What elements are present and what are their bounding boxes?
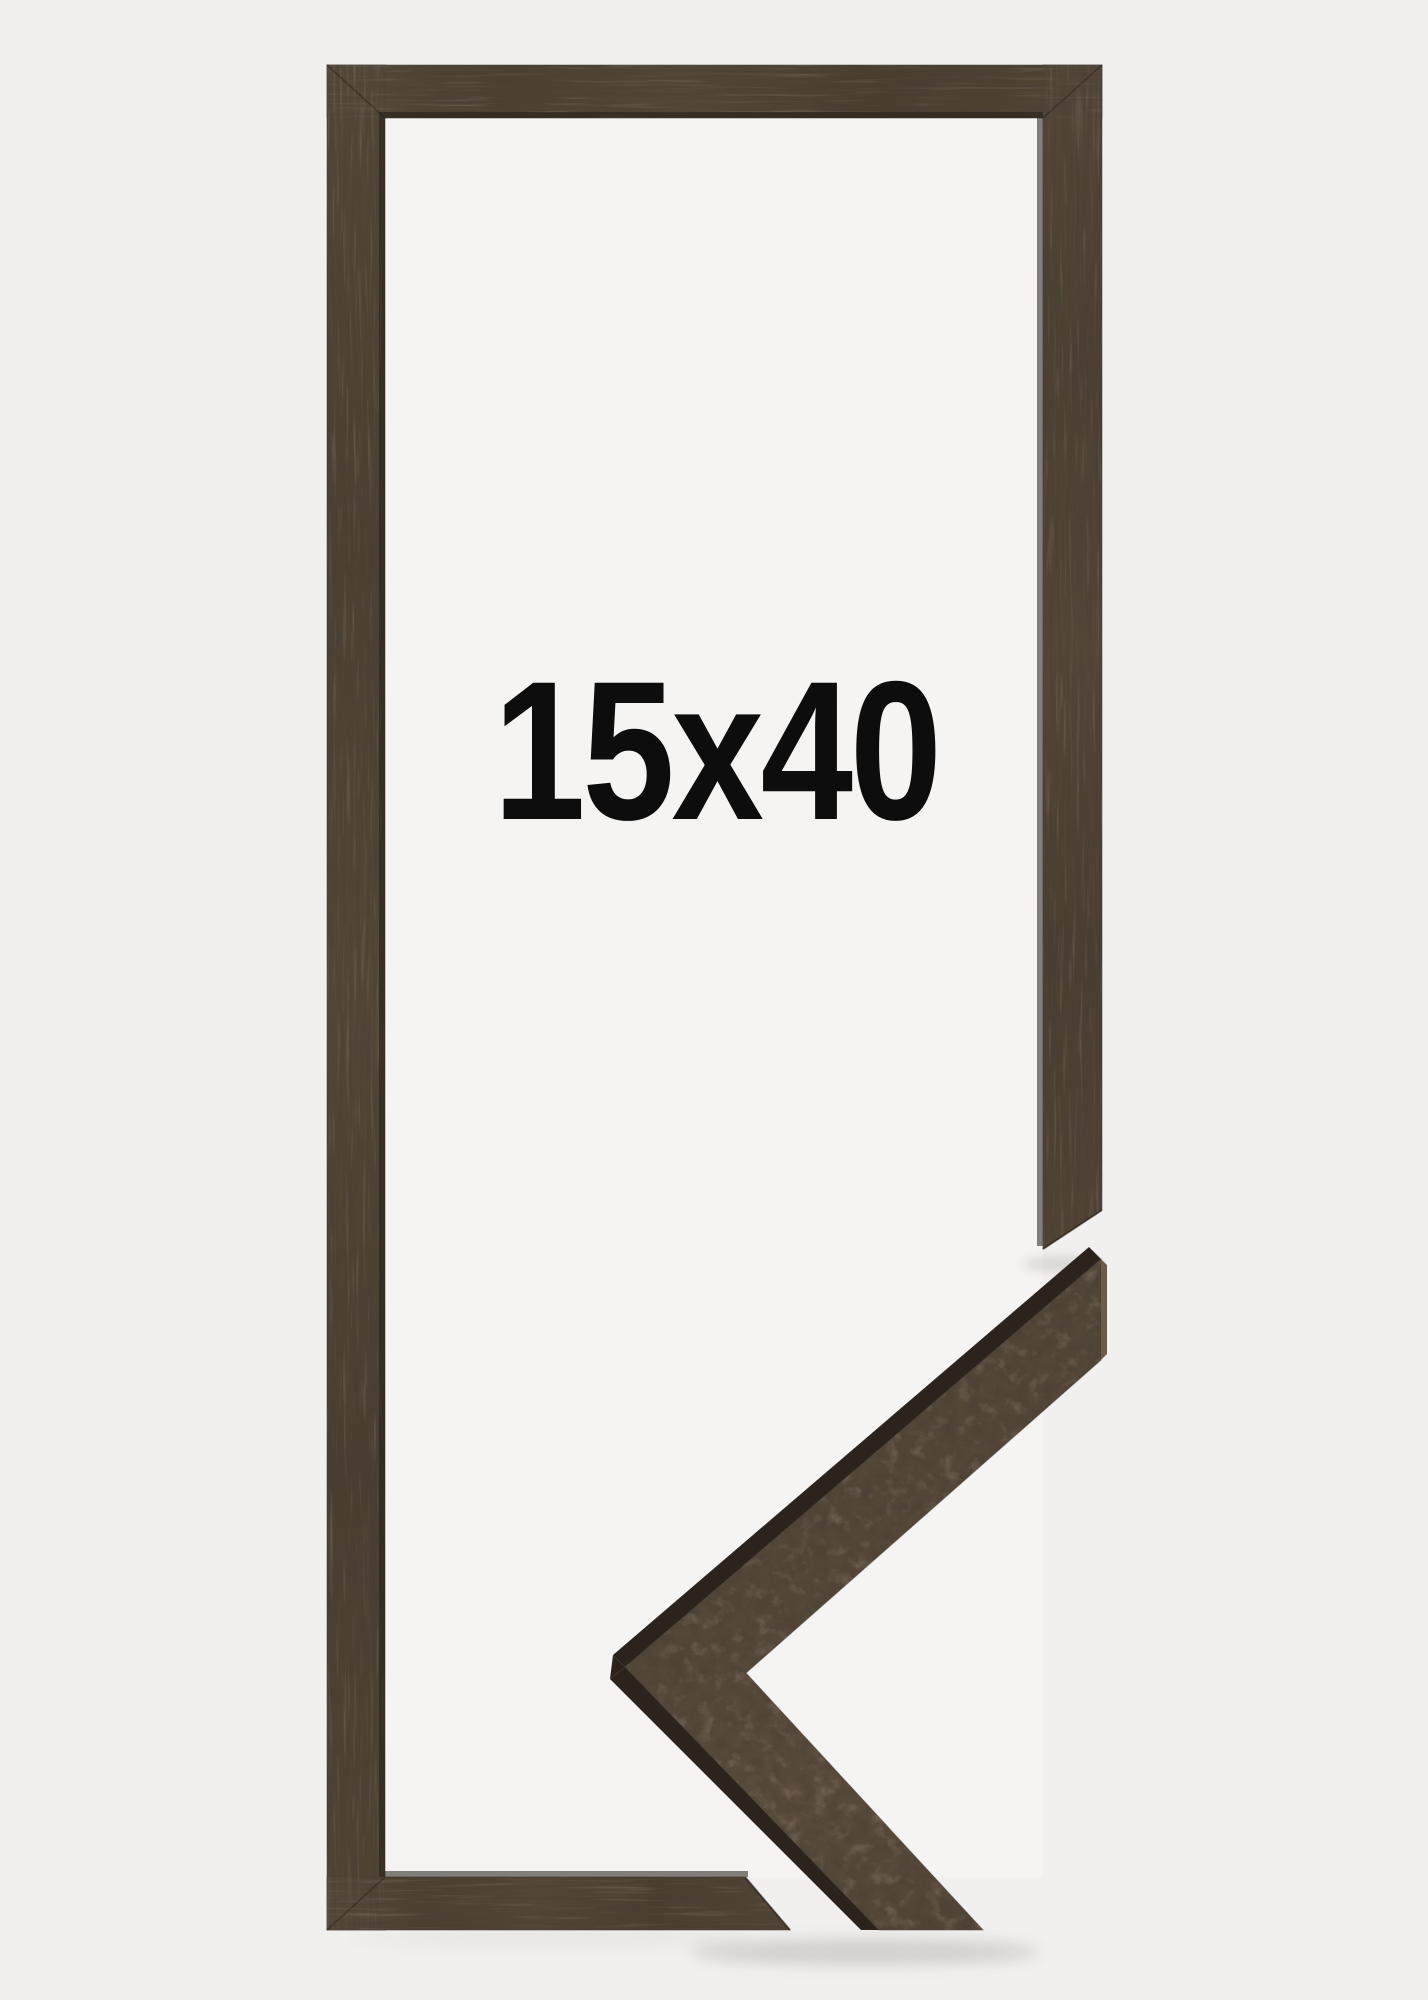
frame-graphic: 15x40 <box>0 0 1428 2000</box>
bottom-rail-grain <box>327 1877 790 1930</box>
left-rail-grain <box>327 65 385 1930</box>
bottom-rail-shadow <box>350 1931 750 1945</box>
product-image: 15x40 <box>0 0 1428 2000</box>
corner-sample-miter-cut-face <box>1101 1259 1107 1360</box>
right-rail-grain <box>1043 65 1102 1249</box>
top-rail-grain <box>327 65 1102 118</box>
sample-drop-shadow <box>690 1939 1040 1965</box>
size-label: 15x40 <box>493 639 939 861</box>
